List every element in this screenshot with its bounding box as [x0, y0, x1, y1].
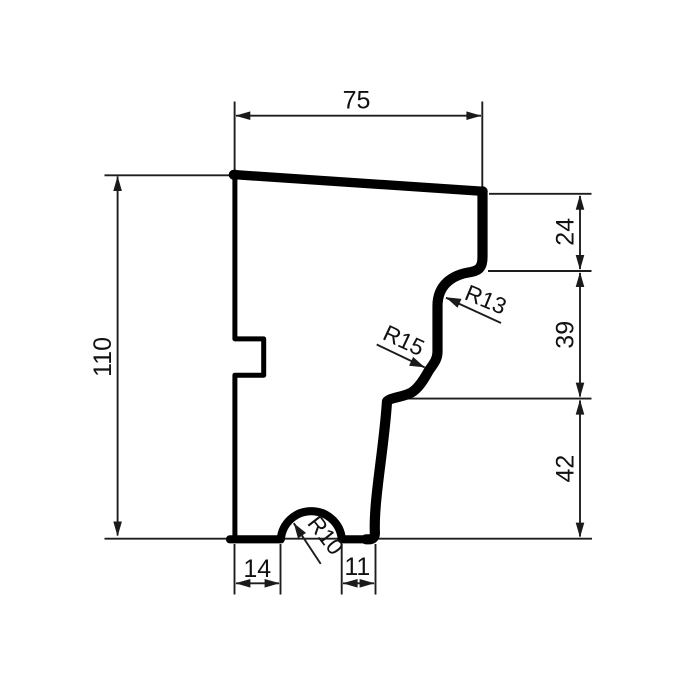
svg-text:39: 39	[551, 321, 579, 349]
svg-text:75: 75	[343, 86, 371, 114]
svg-text:110: 110	[89, 337, 117, 377]
svg-text:24: 24	[551, 218, 579, 246]
svg-text:11: 11	[344, 553, 370, 581]
svg-text:14: 14	[243, 555, 271, 583]
svg-text:42: 42	[551, 455, 579, 483]
